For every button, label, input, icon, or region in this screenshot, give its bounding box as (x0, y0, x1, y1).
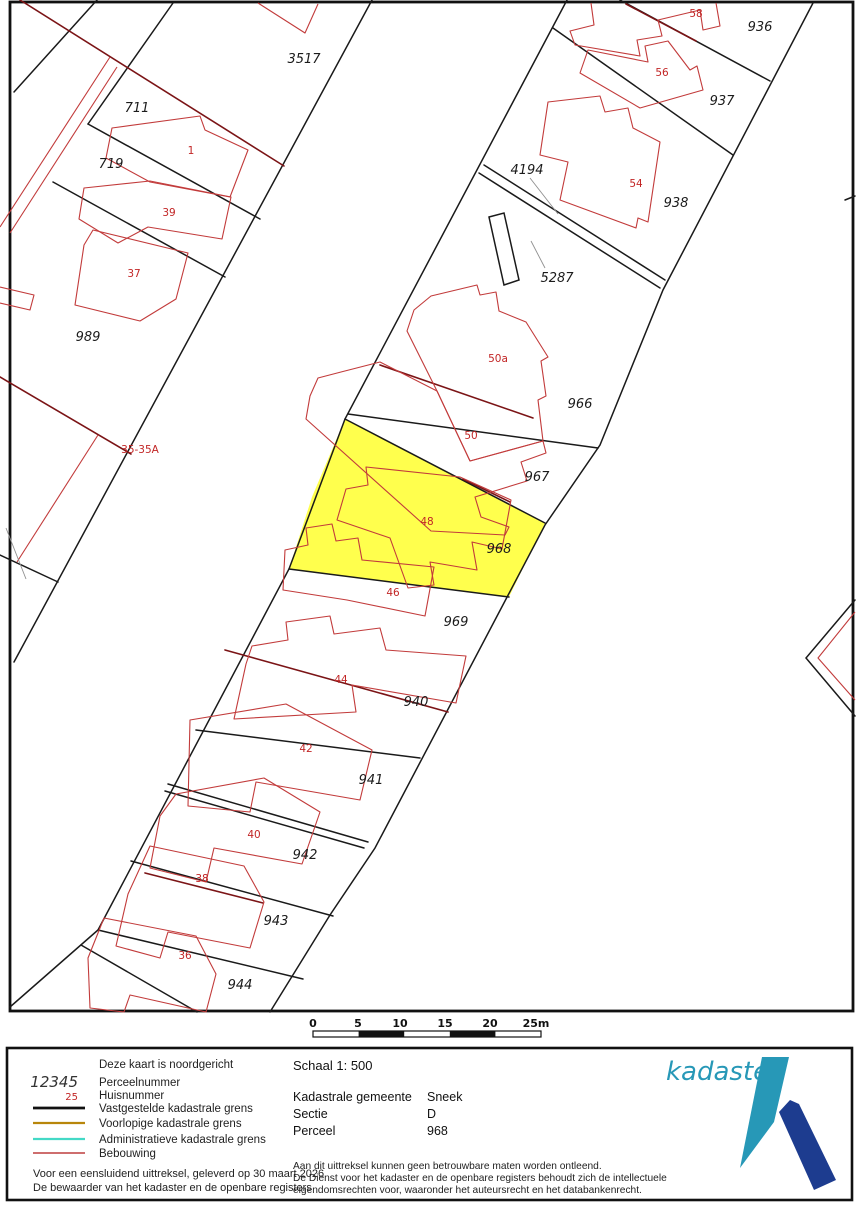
certification-line-2: De bewaarder van het kadaster en de open… (33, 1182, 312, 1194)
parcel-number-label: 968 (487, 542, 512, 557)
scale-tick-20: 20 (482, 1017, 498, 1030)
house-number-label: 39 (162, 207, 175, 219)
disclaimer-line-3: eigendomsrechten voor, waaronder het aut… (293, 1185, 642, 1196)
parcel-number-label: 937 (710, 94, 736, 109)
footer-panel: Deze kaart is noordgericht 12345 Perceel… (7, 1048, 852, 1200)
house-number-label: 56 (655, 67, 669, 79)
parcel-number-label: 966 (568, 397, 593, 412)
field-value-perceel: 968 (427, 1124, 448, 1138)
legend-label-bebouwing: Bebouwing (99, 1148, 156, 1160)
scale-bar-segment (450, 1031, 496, 1037)
parcel-number-label: 942 (293, 848, 318, 863)
parcel-number-label: 719 (99, 157, 124, 172)
house-number-label: 48 (420, 516, 433, 528)
map-canvas: 3517711719989936937938419452879669679689… (0, 0, 855, 1012)
house-number-label: 58 (689, 8, 702, 20)
field-label-gemeente: Kadastrale gemeente (293, 1090, 412, 1104)
parcel-number-label: 5287 (540, 271, 574, 286)
parcel-number-label: 943 (264, 914, 289, 929)
disclaimer-line-1: Aan dit uittreksel kunnen geen betrouwba… (293, 1161, 602, 1172)
house-number-label: 46 (386, 587, 400, 599)
parcel-number-label: 941 (359, 773, 384, 788)
disclaimer-line-2: De Dienst voor het kadaster en de openba… (293, 1173, 667, 1184)
field-value-sectie: D (427, 1107, 436, 1121)
north-note: Deze kaart is noordgericht (99, 1059, 234, 1071)
scale-bar-track (313, 1031, 541, 1037)
legend-label-administratief: Administratieve kadastrale grens (99, 1134, 266, 1146)
field-label-perceel: Perceel (293, 1124, 335, 1138)
house-number-label: 50a (488, 353, 508, 365)
field-value-gemeente: Sneek (427, 1090, 463, 1104)
kadaster-map-extract: 3517711719989936937938419452879669679689… (0, 0, 860, 1205)
scale-bar-segment (359, 1031, 405, 1037)
parcel-number-label: 989 (76, 330, 101, 345)
house-number-label: 42 (299, 743, 312, 755)
parcel-number-label: 938 (664, 196, 689, 211)
scale-tick-10: 10 (392, 1017, 408, 1030)
house-number-label: 44 (334, 674, 348, 686)
house-number-label: 36 (178, 950, 192, 962)
legend-house-label: Huisnummer (99, 1090, 164, 1102)
scale-tick-25m: 25m (523, 1017, 550, 1030)
scale-bar: 0 5 10 15 20 25m (309, 1017, 549, 1037)
sample-parcel-number: 12345 (30, 1073, 78, 1091)
scale-text: Schaal 1: 500 (293, 1058, 373, 1073)
sample-house-number: 25 (65, 1092, 78, 1103)
scale-tick-15: 15 (437, 1017, 452, 1030)
house-number-label: 38 (195, 873, 208, 885)
scale-tick-0: 0 (309, 1017, 317, 1030)
parcel-number-label: 936 (748, 20, 773, 35)
parcel-number-label: 711 (125, 101, 150, 116)
field-label-sectie: Sectie (293, 1107, 328, 1121)
parcel-number-label: 940 (404, 695, 429, 710)
parcel-number-label: 3517 (287, 52, 321, 67)
legend-parcel-label: Perceelnummer (99, 1077, 180, 1089)
legend-label-vastgesteld: Vastgestelde kadastrale grens (99, 1103, 253, 1115)
parcel-number-label: 967 (525, 470, 551, 485)
house-number-label: 40 (247, 829, 260, 841)
certification-line-1: Voor een eensluidend uittreksel, gelever… (33, 1168, 324, 1180)
parcel-number-label: 4194 (510, 163, 543, 178)
house-number-label: 1 (188, 145, 195, 157)
scale-tick-5: 5 (354, 1017, 362, 1030)
house-number-label: 50 (464, 430, 477, 442)
house-number-label: 37 (127, 268, 140, 280)
house-number-label: 35-35A (121, 444, 160, 456)
house-number-label: 54 (629, 178, 643, 190)
parcel-number-label: 944 (228, 978, 253, 993)
parcel-number-label: 969 (444, 615, 469, 630)
legend-label-voorlopig: Voorlopige kadastrale grens (99, 1118, 242, 1130)
